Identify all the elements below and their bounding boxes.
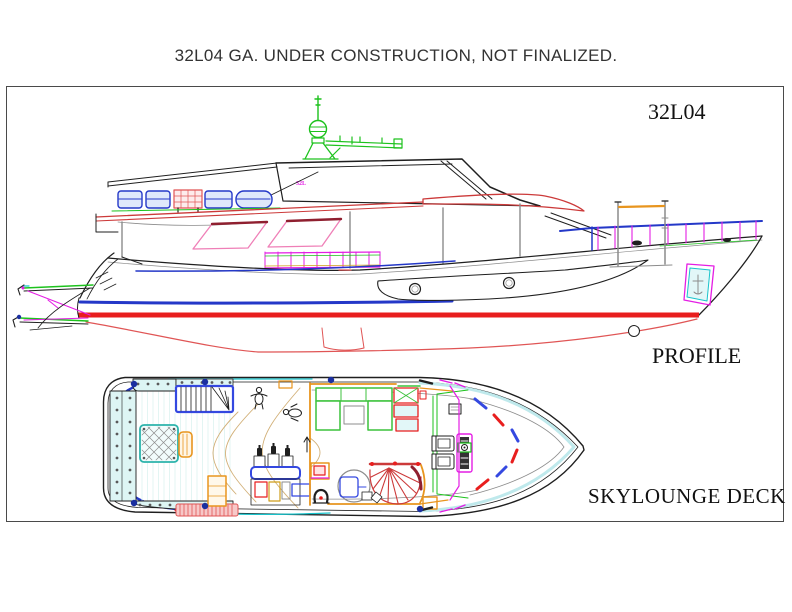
hull-bottom bbox=[86, 319, 697, 352]
foredeck-gate-posts bbox=[610, 201, 672, 267]
profile-view bbox=[13, 96, 762, 352]
radar-mast bbox=[303, 96, 402, 159]
sheer-lines bbox=[108, 236, 762, 274]
skylounge-superstructure bbox=[267, 159, 540, 206]
window-mullion-band bbox=[265, 252, 380, 268]
hull-boarding-window bbox=[684, 264, 714, 305]
pilothouse-brow bbox=[423, 194, 611, 238]
hardtop-aft-wing bbox=[108, 163, 277, 187]
ga-drawing-sheet: 32L04 GA. UNDER CONSTRUCTION, NOT FINALI… bbox=[0, 0, 792, 612]
bow-stem bbox=[684, 236, 762, 317]
waterline-stripe bbox=[78, 313, 699, 318]
foredeck-railing bbox=[560, 221, 762, 250]
bow-thruster bbox=[629, 326, 640, 337]
deck-table bbox=[174, 190, 202, 212]
skylounge-deck-plan bbox=[104, 377, 585, 517]
main-deck-windows bbox=[193, 219, 341, 249]
aft-staircase bbox=[176, 386, 233, 412]
aft-cabinet bbox=[208, 476, 226, 506]
rattan-table bbox=[140, 425, 178, 462]
deck-chair bbox=[179, 432, 192, 457]
stern-passerelle-gear bbox=[13, 285, 93, 330]
yacht-ga-drawing bbox=[0, 0, 792, 612]
